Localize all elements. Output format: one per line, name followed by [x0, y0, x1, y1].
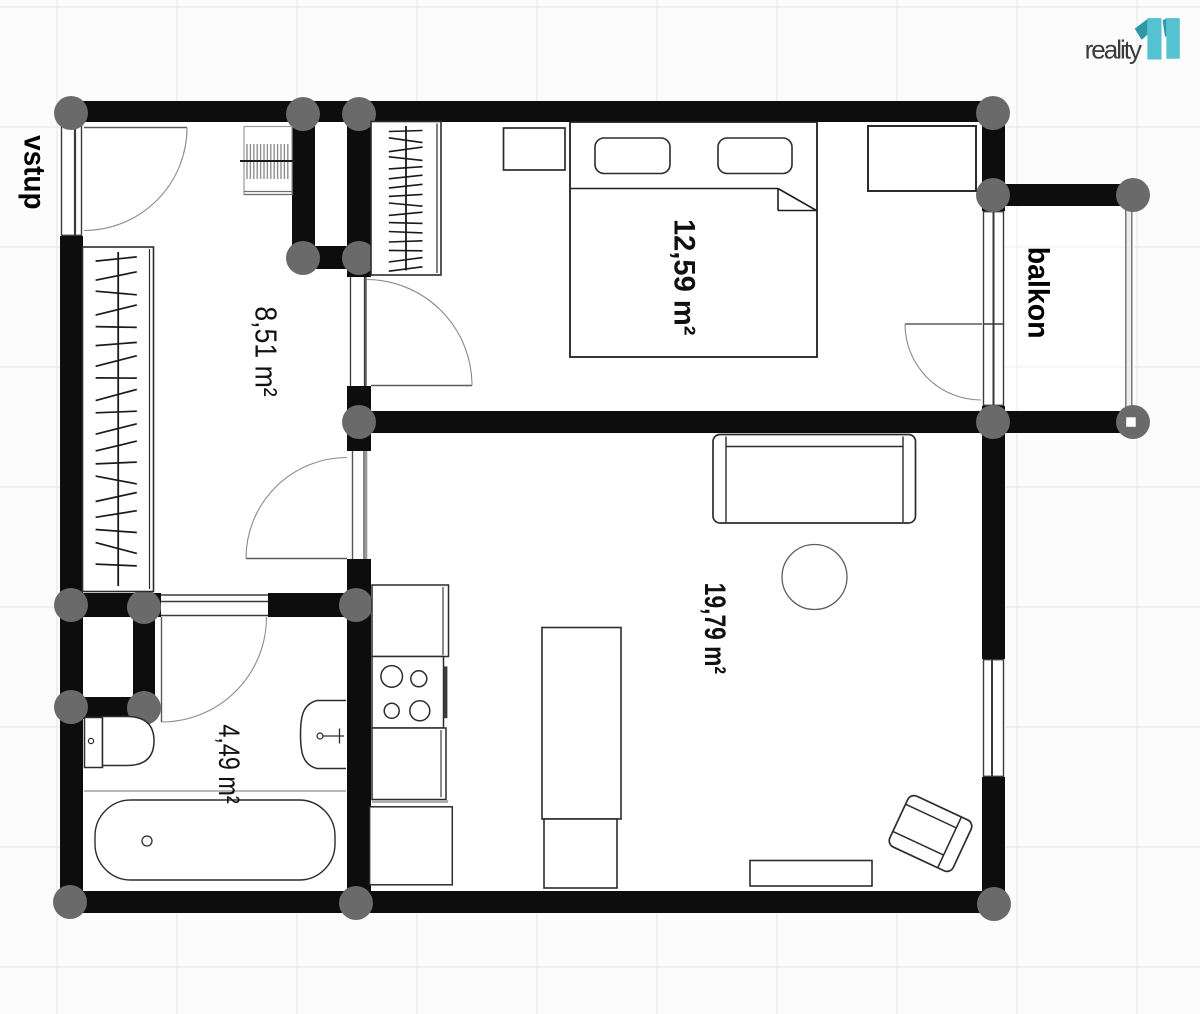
- svg-text:8,51 m²: 8,51 m²: [248, 306, 282, 397]
- svg-text:balkon: balkon: [1021, 247, 1054, 339]
- svg-text:19,79 m²: 19,79 m²: [698, 583, 732, 674]
- svg-text:vstup: vstup: [17, 135, 50, 209]
- svg-text:4,49 m²: 4,49 m²: [212, 724, 245, 803]
- svg-text:reality: reality: [1085, 35, 1142, 65]
- svg-text:12,59 m²: 12,59 m²: [667, 219, 700, 336]
